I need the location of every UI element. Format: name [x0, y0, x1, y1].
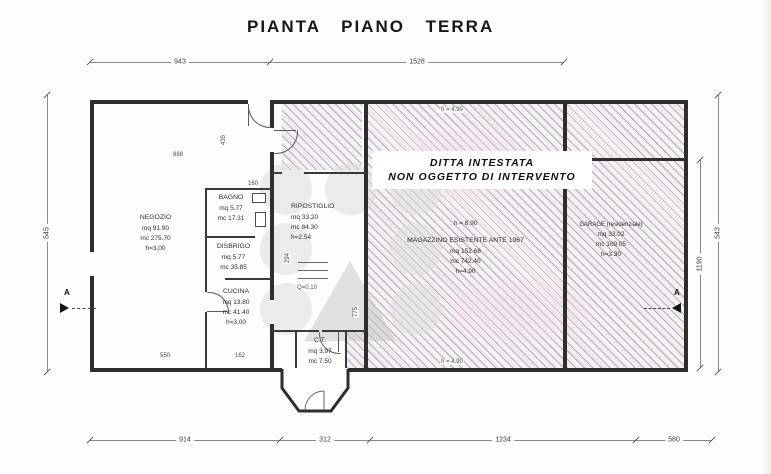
partition [225, 278, 272, 280]
ct-wall [295, 330, 319, 332]
height-note-bottom: h = 4.90 [440, 359, 464, 365]
section-line [72, 308, 96, 309]
room-label-cucina: CUCINA mq 13.80 mc 41.40 h=3.00 [206, 287, 266, 328]
dim-tick [43, 368, 50, 375]
room-label-disbrigo: DISBRIGO mq 5.77 mc 35.85 [206, 242, 261, 273]
stairs-icon [298, 270, 328, 271]
stairs-icon [298, 262, 328, 263]
room-height: h=4.90 [398, 267, 533, 277]
room-volume: mc 41.40 [206, 308, 266, 318]
room-name: NEGOZIO [118, 213, 193, 224]
room-label-negozio: NEGOZIO mq 91.90 mc 275.70 h=3.00 [118, 213, 193, 254]
dimension-label: 545 [44, 224, 51, 242]
section-marker-label: A [64, 288, 70, 297]
height-note-top: h = 4.90 [440, 107, 464, 113]
dimension-label: 1528 [406, 59, 428, 66]
room-label-magazzino: h = 8.90 MAGAZZINO ESISTENTE ANTE 1967 m… [398, 219, 533, 277]
dimension-label: 1190 [697, 253, 704, 274]
dimension-label: 1234 [492, 437, 514, 444]
partition [272, 172, 282, 174]
room-label-bagno: BAGNO mq 5.77 mc 17.31 [206, 193, 256, 224]
dimension-line-top [90, 62, 564, 63]
ct-wall [345, 330, 347, 368]
room-label-garage: GARAGE (residenziale) mq 33.02 mc 109.05… [570, 221, 652, 260]
stairs-icon [298, 278, 328, 279]
wall-right [684, 100, 688, 372]
partition [205, 236, 255, 238]
entrance-vestibule [273, 368, 357, 420]
dim-tick [708, 436, 715, 443]
floor-level-note: Q=0.10 [296, 285, 318, 291]
room-label-ct: C.T. mq 3.97 mc 7.50 [299, 336, 341, 367]
internal-dim: 435 [221, 134, 227, 146]
wall-left [90, 100, 94, 252]
room-volume: mc 7.50 [299, 357, 341, 367]
room-name: C.T. [299, 336, 341, 347]
room-label-ripostiglio: RIPOSTIGLIO mq 33.20 mc 84.30 h=2.54 [283, 202, 357, 243]
scan-tint [450, 280, 590, 340]
section-line [644, 308, 670, 309]
dimension-label: 580 [665, 437, 683, 444]
wall-interior [563, 100, 567, 372]
banner-line2: NON OGGETTO DI INTERVENTO [388, 170, 575, 184]
internal-dim: 162 [234, 353, 246, 359]
room-height: h=3.00 [118, 244, 193, 254]
no-intervention-banner: DITTA INTESTATA NON OGGETTO DI INTERVENT… [372, 151, 592, 189]
room-area: mq 152.68 [398, 247, 533, 257]
room-area: mq 3.97 [299, 347, 341, 357]
wall-bottom [90, 368, 282, 372]
room-name: DISBRIGO [206, 242, 261, 253]
internal-dim: 888 [172, 152, 184, 158]
room-area: mq 5.77 [206, 253, 261, 263]
room-name: RIPOSTIGLIO [291, 202, 357, 213]
wall-bottom [348, 368, 688, 372]
ct-wall [295, 332, 297, 368]
room-volume: mc 275.70 [118, 234, 193, 244]
page-title: PIANTA PIANO TERRA [247, 17, 494, 37]
wall-left [90, 276, 94, 372]
sink-fixture-icon [255, 212, 266, 227]
partition [205, 188, 272, 190]
dimension-label: 312 [316, 437, 334, 444]
room-name: GARAGE (residenziale) [570, 221, 652, 230]
room-volume: mc 84.30 [291, 223, 357, 233]
room-volume: mc 742.40 [398, 257, 533, 267]
dim-tick [696, 364, 703, 371]
watermark-triangle [304, 261, 396, 341]
banner-line1: DITTA INTESTATA [430, 156, 534, 170]
section-arrow-icon [672, 303, 681, 313]
room-name: MAGAZZINO ESISTENTE ANTE 1967 [398, 236, 533, 247]
wall-top [90, 100, 248, 104]
room-area: mq 33.20 [291, 213, 357, 223]
internal-dim: 160 [247, 181, 259, 187]
room-volume: mc 109.05 [570, 240, 652, 250]
door-arc [248, 104, 272, 128]
room-area: mq 13.80 [206, 298, 266, 308]
room-volume: mc 17.31 [206, 214, 256, 224]
door-leaf [274, 130, 296, 131]
dimension-label: 943 [171, 59, 189, 66]
room-height: h=3.00 [206, 318, 266, 328]
internal-dim: 775 [353, 306, 359, 318]
room-name: BAGNO [206, 193, 256, 204]
room-name: CUCINA [206, 287, 266, 298]
room-area: mq 33.02 [570, 230, 652, 240]
dimension-label: 914 [176, 437, 194, 444]
room-height: h=3.30 [570, 250, 652, 260]
dim-tick [714, 368, 721, 375]
room-area: mq 5.77 [206, 204, 256, 214]
section-marker-label: A [674, 288, 680, 297]
wall-top [270, 100, 688, 104]
dimension-label: 543 [715, 224, 722, 242]
room-volume: mc 35.85 [206, 263, 261, 273]
section-arrow-icon [60, 303, 69, 313]
floor-plan-sheet: PIANTA PIANO TERRA [0, 0, 771, 474]
door-leaf [248, 104, 249, 126]
scan-edge-shadow [761, 0, 771, 474]
watermark-dot [390, 283, 442, 335]
internal-dim: 294 [285, 252, 291, 264]
partition [304, 172, 366, 174]
room-area: mq 91.90 [118, 224, 193, 234]
dim-tick [560, 58, 567, 65]
internal-dim: 550 [159, 353, 171, 359]
room-height: h=2.54 [291, 233, 357, 243]
room-ridge-height: h = 8.90 [398, 219, 533, 229]
